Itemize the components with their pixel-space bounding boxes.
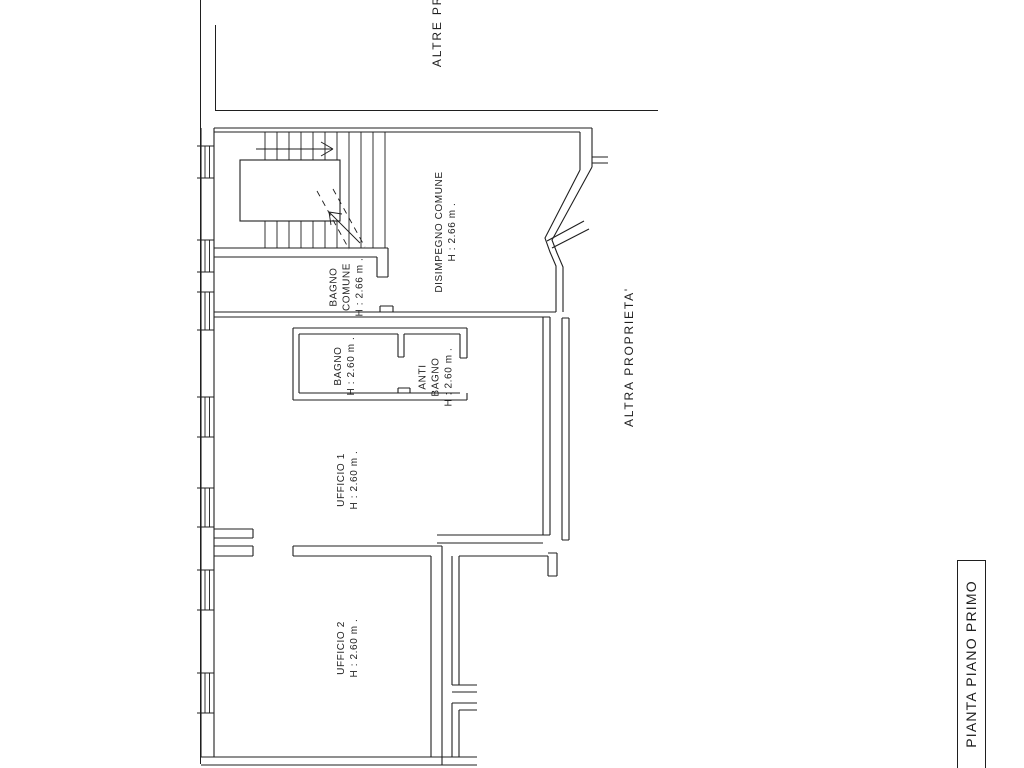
wall-ufficio2-right [431,546,442,765]
title-block-label: PIANTA PIANO PRIMO [963,580,979,748]
window-row-left [197,146,214,713]
corridor-walls [452,556,477,757]
stair-down-arrow [329,212,360,243]
boundary-label-top: ALTRE PR [430,0,444,67]
drawing-title-text: PIANTA PIANO PRIMO [963,580,979,748]
room-label-bagno-comune: BAGNO COMUNE H : 2.66 m . [328,258,367,317]
stair-up-arrow [256,142,333,156]
boundary-label-right-text: ALTRA PROPRIETA' [622,287,636,427]
room-label-bagno: BAGNO H : 2.60 m . [332,337,358,396]
wall-ufficio1-right [543,317,550,535]
staircase [240,132,385,249]
stair-core [240,160,340,221]
wall-other-property [562,318,569,540]
wall-break-zigzag [545,167,592,312]
room-label-disimpegno-comune: DISIMPEGNO COMUNE H : 2.66 m . [433,171,459,292]
exterior-wall-left [201,128,214,757]
room-label-ufficio-2: UFFICIO 2 H : 2.60 m . [335,619,361,678]
wall-ufficio-divider [214,529,557,576]
wall-middle-long [214,306,556,317]
room-label-anti-bagno: ANTI BAGNO H : 2.60 m . [417,348,456,407]
room-label-ufficio-1: UFFICIO 1 H : 2.60 m . [335,451,361,510]
boundary-label-top-text: ALTRE PR [430,0,444,67]
wall-bottom [201,757,477,765]
boundary-label-right: ALTRA PROPRIETA' [622,287,636,427]
floor-plan-page: ALTRE PR BAGNO COMUNE H : 2.66 m . DISIM… [0,0,1024,768]
floor-plan-drawing [0,0,1024,768]
